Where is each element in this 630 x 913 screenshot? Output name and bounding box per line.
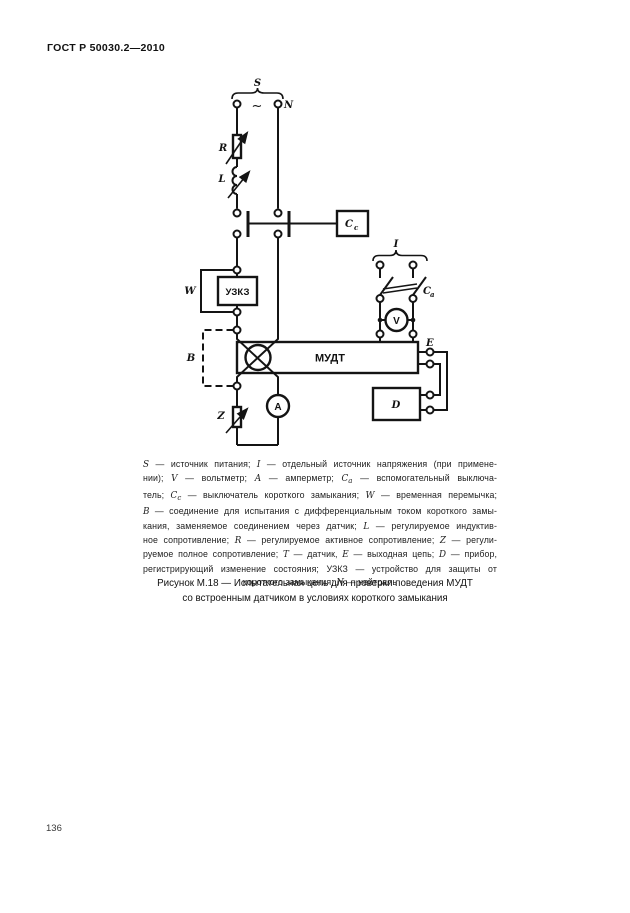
aux-switch-ca: C а	[377, 277, 436, 302]
resistor-r: R	[218, 108, 247, 165]
dashed-bypass-b	[203, 330, 234, 386]
ammeter: A	[237, 395, 289, 445]
impedance-z: Z	[216, 390, 247, 446]
device-terminal-2	[427, 407, 434, 414]
document-header: ГОСТ Р 50030.2—2010	[47, 42, 165, 54]
inductor-adjust-arrow	[228, 172, 249, 198]
label-ammeter-a: A	[274, 402, 281, 413]
label-resistor-r: R	[218, 143, 227, 154]
brace-s	[232, 88, 283, 99]
legend-line: S — источник питания; I — отдельный исто…	[143, 458, 497, 472]
label-sc-switch-sub: с	[354, 223, 359, 232]
label-inductor-l: L	[217, 174, 225, 185]
label-neutral-n: N	[283, 100, 294, 111]
inductor-l: L	[217, 158, 249, 209]
label-source-i: I	[393, 239, 399, 250]
output-terminal-1	[427, 349, 434, 356]
output-terminal-2	[427, 361, 434, 368]
legend-line: тель; Сс — выключатель короткого замыкан…	[143, 489, 497, 505]
uzkz-section: УЗКЗ W	[184, 238, 257, 327]
label-output-e: E	[425, 338, 434, 349]
caption-line-2: со встроенным датчиком в условиях коротк…	[85, 592, 545, 607]
current-source-section: I	[373, 239, 427, 278]
label-impedance-z: Z	[216, 411, 225, 422]
voltmeter-branch: V	[377, 302, 417, 342]
legend-line: В — соединение для испытания с дифференц…	[143, 505, 497, 519]
short-circuit-switch: C с	[234, 210, 369, 238]
circuit-diagram: S ~ N R L	[170, 75, 470, 467]
label-source-s: S	[254, 78, 261, 89]
document-page: ГОСТ Р 50030.2—2010 S ~ N R	[0, 0, 630, 913]
figure-caption: Рисунок М.18 — Испытательная цепь для пр…	[85, 577, 545, 606]
ac-symbol: ~	[252, 99, 263, 114]
legend-line: кания, заменяемое соединением через датч…	[143, 520, 497, 534]
label-bracket-b: B	[186, 353, 195, 364]
device-terminal-1	[427, 392, 434, 399]
legend-line: регистрирующий изменение состояния; УЗКЗ…	[143, 563, 497, 576]
inner-output-link	[434, 364, 441, 395]
label-device-d: D	[391, 400, 401, 411]
legend-line: руемое полное сопротивление; Т — датчик,…	[143, 548, 497, 562]
legend-line: ное сопротивление; R — регулируемое акти…	[143, 534, 497, 548]
page-number: 136	[46, 823, 62, 834]
label-mudt: МУДТ	[315, 353, 345, 365]
supply-section: S ~ N	[232, 78, 294, 114]
label-jumper-w: W	[184, 286, 197, 297]
brace-i	[373, 250, 427, 261]
label-sc-switch-c: C	[345, 219, 353, 230]
legend-line: нии); V — вольтметр; А — амперметр; Са —…	[143, 472, 497, 488]
label-voltmeter-v: V	[393, 316, 400, 327]
figure-legend: S — источник питания; I — отдельный исто…	[143, 458, 497, 591]
label-aux-switch-sub: а	[430, 290, 435, 299]
caption-line-1: Рисунок М.18 — Испытательная цепь для пр…	[85, 577, 545, 592]
bracket-b-connection: B	[186, 327, 241, 390]
supply-terminal-phase	[234, 101, 241, 108]
label-uzkz: УЗКЗ	[226, 287, 250, 298]
supply-terminal-neutral	[275, 101, 282, 108]
